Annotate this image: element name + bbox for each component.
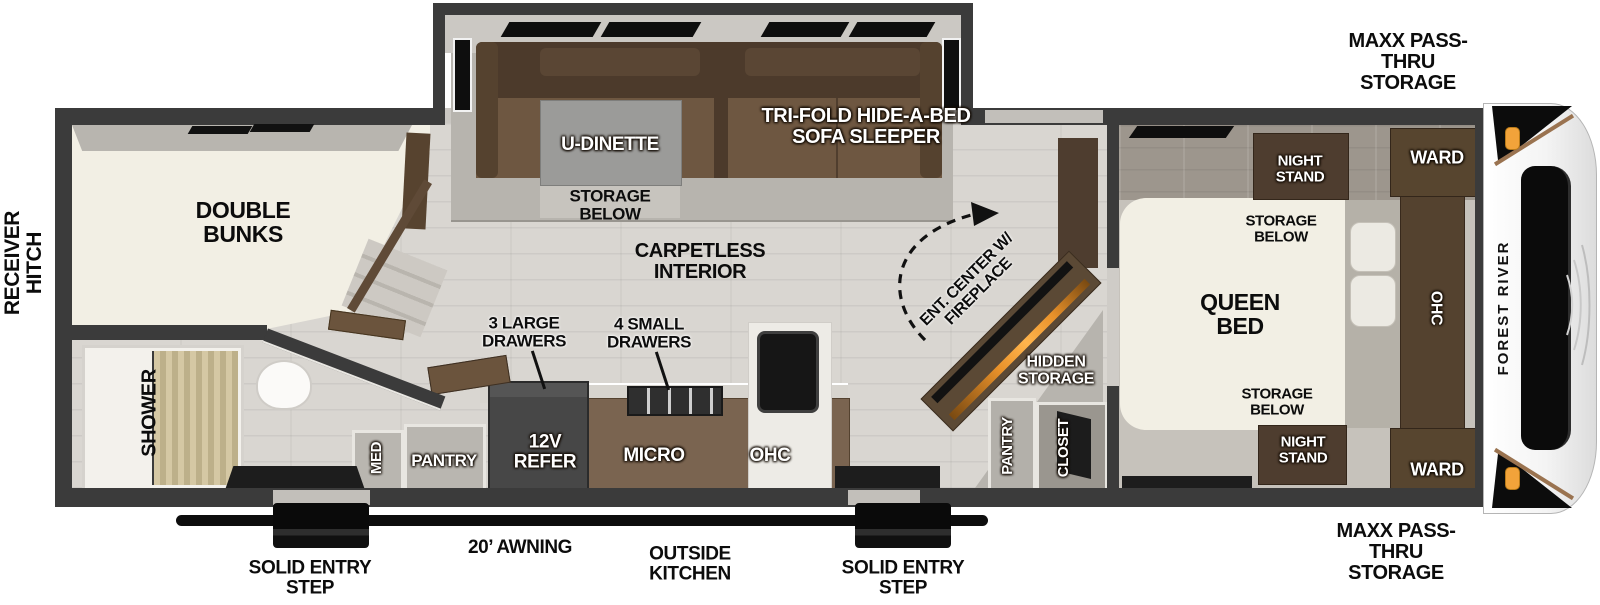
pantry-right-label: PANTRY <box>1000 417 1016 475</box>
slide-window-left-side <box>453 38 472 112</box>
med-cabinet-label: MED <box>369 442 385 474</box>
slide-window-1 <box>501 22 602 37</box>
pantry-left-label: PANTRY <box>411 452 477 470</box>
sofa-divider <box>714 42 728 178</box>
kitchen-sink <box>757 331 819 413</box>
toilet <box>256 360 312 410</box>
double-bunks-label: DOUBLE BUNKS <box>163 199 323 247</box>
sofa-arm-left <box>476 42 498 178</box>
entry-step-right-label: SOLID ENTRY STEP <box>833 558 973 598</box>
sofa-label: TRI-FOLD HIDE-A-BED SOFA SLEEPER <box>759 106 974 148</box>
slide-window-2 <box>601 22 702 37</box>
bed-pillow-1 <box>1350 222 1396 272</box>
storage-front-label: STORAGE BELOW <box>1235 213 1327 244</box>
ent-center-cabinet-tall <box>1058 138 1098 268</box>
small-drawer-bank <box>627 386 723 416</box>
maxx-pass-thru-bottom-label: MAXX PASS-THRU STORAGE <box>1321 521 1471 583</box>
clearance-light-bottom <box>1505 467 1520 490</box>
awning-label: 20’ AWNING <box>468 538 572 558</box>
ward-rear-label: WARD <box>1410 461 1463 480</box>
slide-window-right-side <box>942 38 961 112</box>
ohc-kitchen-label: OHC <box>749 446 790 466</box>
bed-pillow-2 <box>1350 275 1396 327</box>
outside-kitchen-label: OUTSIDE KITCHEN <box>638 544 743 584</box>
bunk-window-2 <box>250 124 315 132</box>
night-stand-rear-label: NIGHT STAND <box>1266 434 1341 465</box>
u-dinette-label: U-DINETTE <box>561 135 659 155</box>
bottom-wall <box>55 488 1490 507</box>
maxx-pass-thru-top-label: MAXX PASS-THRU STORAGE <box>1333 31 1483 93</box>
refrigerator-label: 12V REFER <box>499 432 591 472</box>
ward-front-label: WARD <box>1410 149 1463 168</box>
dinette-storage-label: STORAGE BELOW <box>558 187 663 222</box>
queen-bed-label: QUEEN BED <box>1180 291 1300 339</box>
entry-step-left-label: SOLID ENTRY STEP <box>240 558 380 598</box>
floorplan-stage: FOREST RIVER RECEIVER HITCH DOUBLE BUNKS… <box>0 0 1600 605</box>
cap-speed-lines <box>1562 240 1594 370</box>
entry-step-right-box <box>855 503 951 548</box>
closet-label: CLOSET <box>1056 419 1072 477</box>
forest-river-logo-text: FOREST RIVER <box>1496 241 1512 376</box>
entry-step-left-box <box>273 503 369 548</box>
small-drawers-label: 4 SMALL DRAWERS <box>593 315 705 350</box>
large-drawers-label: 3 LARGE DRAWERS <box>468 314 580 349</box>
receiver-hitch-label: RECEIVER HITCH <box>2 203 46 323</box>
hidden-storage-label: HIDDEN STORAGE <box>1001 354 1111 387</box>
slide-window-3 <box>761 22 850 37</box>
shower-label: SHOWER <box>140 369 161 457</box>
entry-mat-left <box>225 466 365 490</box>
sofa-back-cushion-2 <box>745 48 920 76</box>
ohc-bedroom-label: OHC <box>1427 291 1444 325</box>
microwave-label: MICRO <box>623 446 684 466</box>
shower-curtain <box>152 351 238 485</box>
slide-out-wall-top <box>433 3 973 15</box>
left-end-wall <box>55 108 72 507</box>
carpetless-interior-label: CARPETLESS INTERIOR <box>613 241 788 283</box>
clearance-light-top <box>1505 127 1520 150</box>
bunk-window-1 <box>188 126 253 134</box>
slide-window-4 <box>849 22 936 37</box>
bunk-bath-divider-wall <box>55 325 267 340</box>
night-stand-front-label: NIGHT STAND <box>1263 153 1338 184</box>
slide-out-wall-left <box>433 3 445 125</box>
top-wall-left-segment <box>55 108 433 125</box>
storage-rear-label: STORAGE BELOW <box>1231 386 1323 417</box>
entry-mat-right <box>835 466 940 488</box>
entry-door-top-gap <box>985 110 1103 123</box>
bedroom-skylight <box>1129 126 1234 138</box>
sofa-back-cushion-1 <box>540 48 700 76</box>
